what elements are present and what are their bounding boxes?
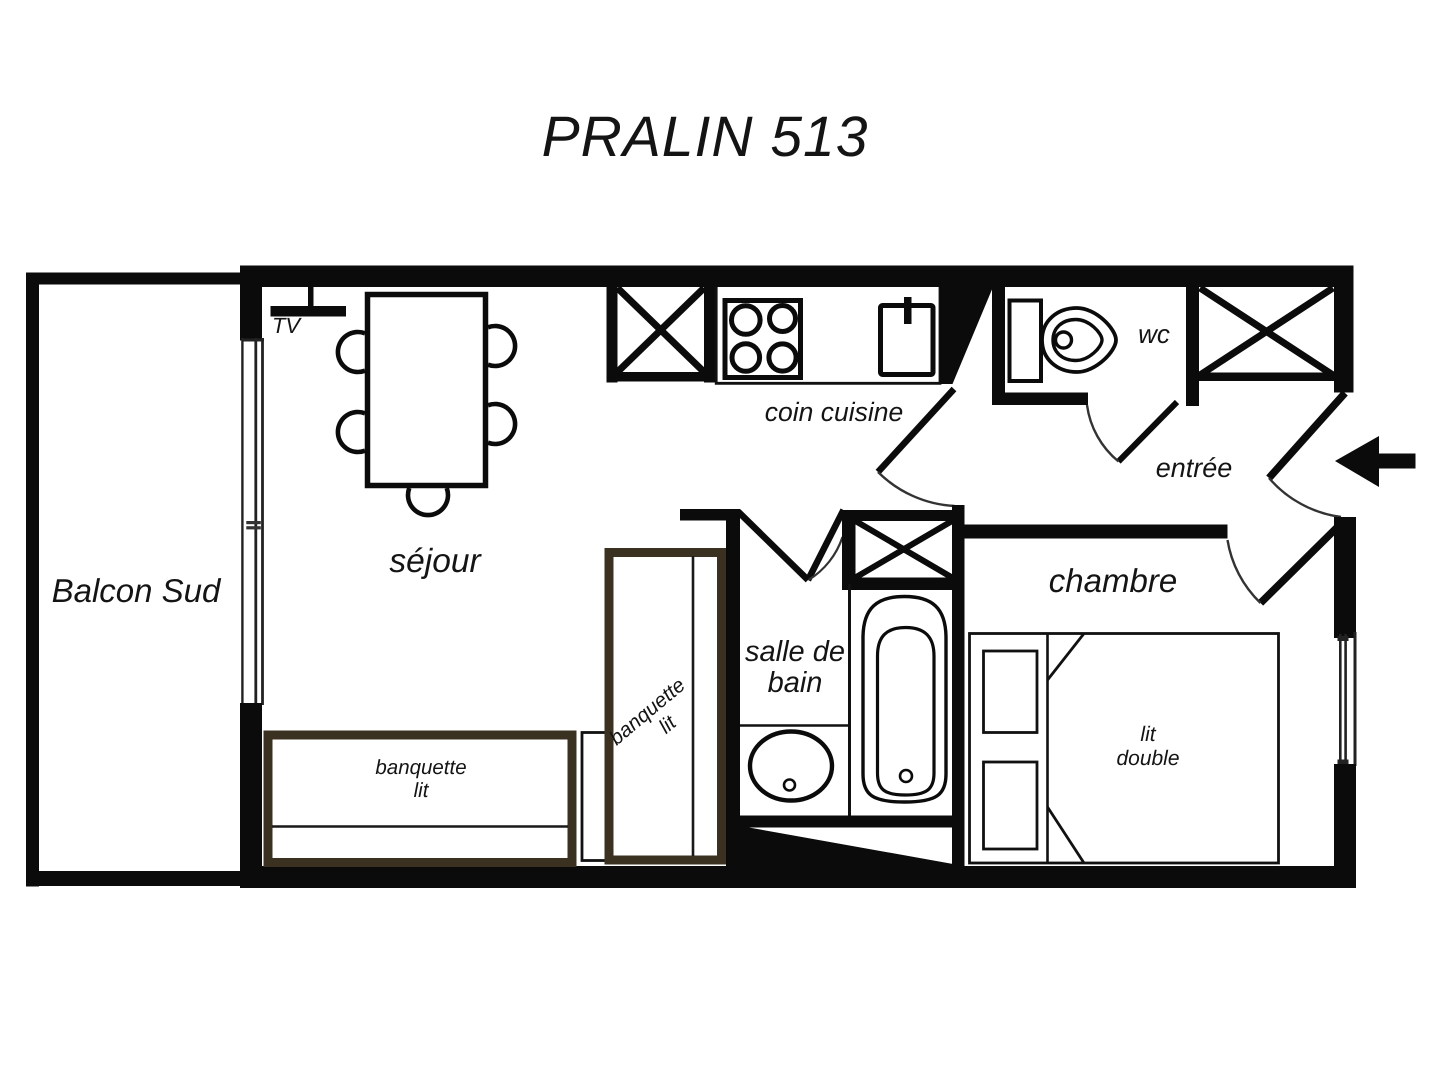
- svg-text:coin cuisine: coin cuisine: [765, 397, 903, 427]
- svg-text:séjour: séjour: [389, 543, 482, 580]
- svg-text:Balcon Sud: Balcon Sud: [52, 572, 222, 609]
- svg-text:lit: lit: [1140, 723, 1156, 746]
- svg-text:TV: TV: [272, 313, 302, 338]
- svg-text:PRALIN 513: PRALIN 513: [542, 105, 869, 169]
- svg-text:bain: bain: [768, 667, 823, 699]
- svg-text:chambre: chambre: [1049, 562, 1177, 599]
- svg-text:lit: lit: [414, 779, 430, 802]
- svg-text:banquette: banquette: [375, 756, 466, 779]
- svg-text:wc: wc: [1138, 319, 1170, 349]
- svg-text:double: double: [1116, 747, 1179, 770]
- svg-text:salle de: salle de: [745, 636, 845, 668]
- svg-text:entrée: entrée: [1156, 453, 1233, 483]
